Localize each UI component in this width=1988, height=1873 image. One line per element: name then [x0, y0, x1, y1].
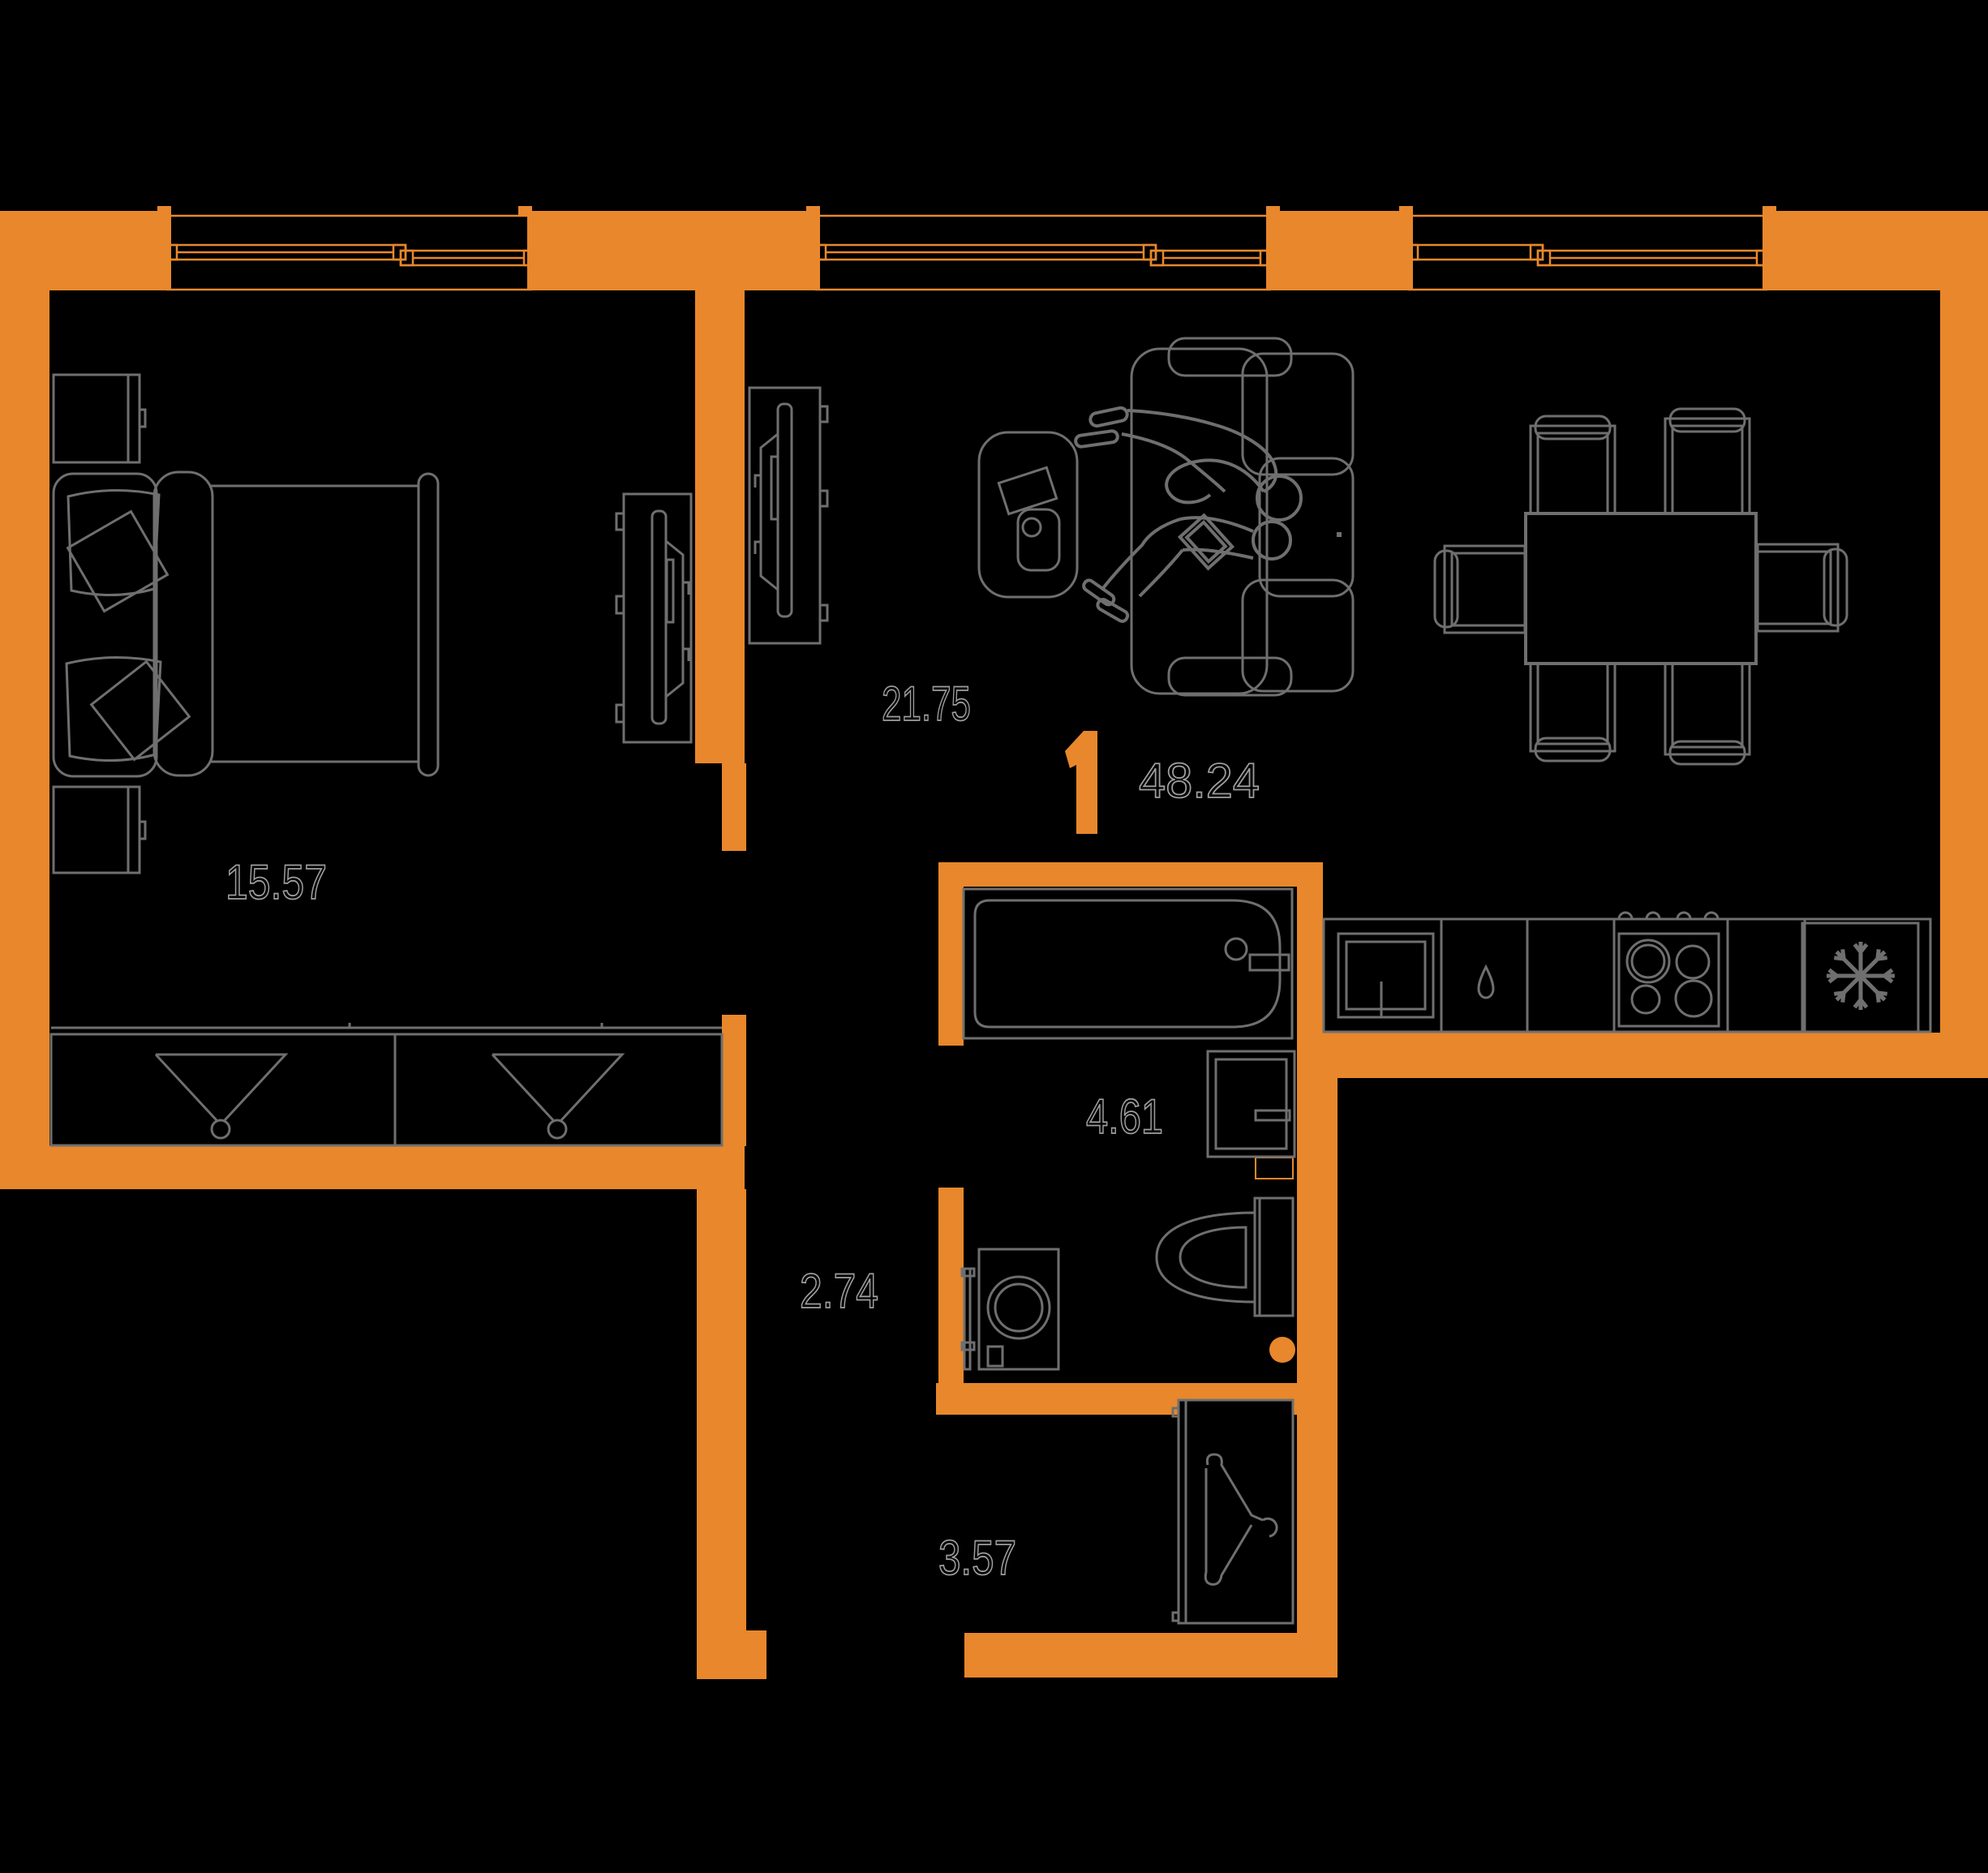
- svg-text:4.61: 4.61: [1086, 1089, 1163, 1144]
- svg-text:15.57: 15.57: [225, 855, 327, 909]
- svg-text:21.75: 21.75: [882, 677, 971, 731]
- svg-text:3.57: 3.57: [938, 1531, 1016, 1585]
- svg-text:2.74: 2.74: [800, 1264, 878, 1318]
- svg-text:48.24: 48.24: [1139, 754, 1260, 808]
